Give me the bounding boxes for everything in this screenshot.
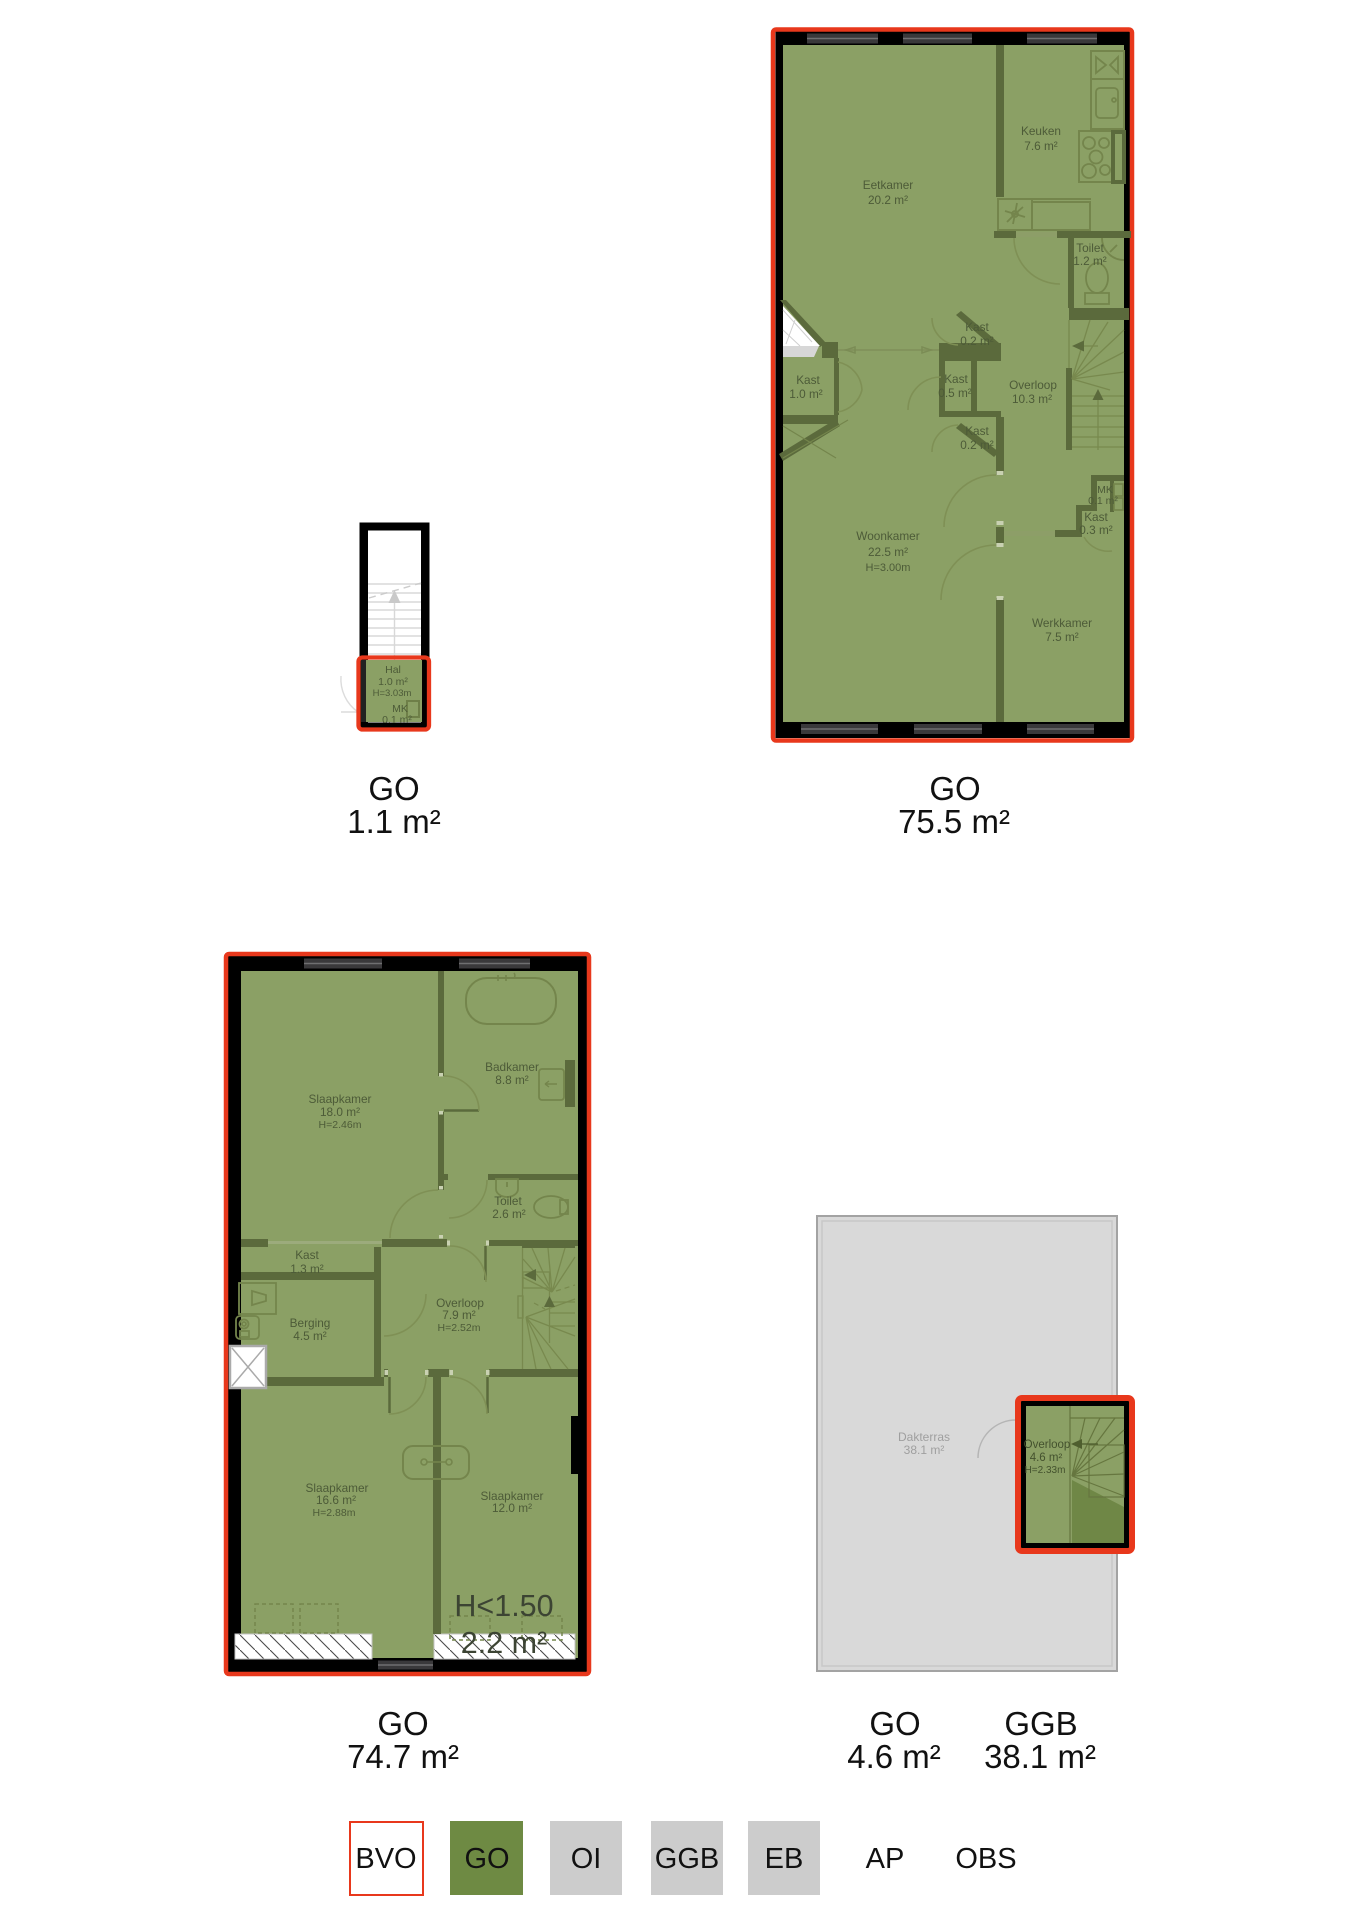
svg-text:7.6 m²: 7.6 m² (1024, 139, 1058, 153)
svg-text:Kast: Kast (1084, 510, 1108, 524)
svg-text:2.6 m²: 2.6 m² (492, 1207, 526, 1221)
svg-text:8.8 m²: 8.8 m² (495, 1073, 529, 1087)
svg-text:Berging: Berging (290, 1316, 331, 1330)
svg-text:H=2.33m: H=2.33m (1025, 1465, 1066, 1476)
svg-text:GO: GO (869, 1705, 920, 1742)
svg-text:GO: GO (464, 1843, 509, 1875)
svg-text:1.3 m²: 1.3 m² (290, 1262, 324, 1276)
svg-text:GO: GO (377, 1705, 428, 1742)
svg-text:0.2 m²: 0.2 m² (960, 438, 994, 452)
svg-text:H<1.50: H<1.50 (454, 1589, 553, 1623)
svg-text:Kast: Kast (295, 1248, 319, 1262)
svg-text:0.1 m²: 0.1 m² (382, 714, 412, 726)
svg-text:0.5 m²: 0.5 m² (938, 386, 972, 400)
svg-text:38.1 m²: 38.1 m² (904, 1443, 945, 1457)
svg-text:4.6 m²: 4.6 m² (1030, 1452, 1063, 1464)
svg-text:Toilet: Toilet (494, 1194, 522, 1208)
svg-text:GGB: GGB (1004, 1705, 1077, 1742)
svg-text:AP: AP (866, 1843, 905, 1875)
svg-text:Kast: Kast (965, 424, 989, 438)
svg-text:74.7 m²: 74.7 m² (347, 1738, 459, 1775)
svg-text:Dakterras: Dakterras (898, 1430, 950, 1444)
svg-text:0.3 m²: 0.3 m² (1079, 523, 1113, 537)
svg-text:Overloop: Overloop (1009, 378, 1057, 392)
svg-text:0.1 m²: 0.1 m² (1088, 495, 1118, 507)
svg-text:Toilet: Toilet (1076, 241, 1104, 255)
svg-text:OBS: OBS (955, 1843, 1016, 1875)
svg-text:Woonkamer: Woonkamer (856, 529, 919, 543)
svg-text:Kast: Kast (944, 372, 968, 386)
svg-text:Overloop: Overloop (1024, 1439, 1071, 1451)
svg-text:EB: EB (765, 1843, 804, 1875)
svg-text:Kast: Kast (796, 373, 820, 387)
svg-text:4.6 m²: 4.6 m² (847, 1738, 941, 1775)
svg-text:Keuken: Keuken (1021, 124, 1061, 138)
svg-text:GO: GO (368, 770, 419, 807)
svg-text:H=2.46m: H=2.46m (319, 1119, 362, 1131)
svg-text:1.2 m²: 1.2 m² (1073, 254, 1107, 268)
svg-text:7.9 m²: 7.9 m² (442, 1308, 476, 1322)
svg-text:2.2 m²: 2.2 m² (461, 1626, 547, 1660)
svg-text:75.5 m²: 75.5 m² (898, 803, 1010, 840)
svg-text:Eetkamer: Eetkamer (863, 178, 914, 192)
svg-text:1.0 m²: 1.0 m² (378, 676, 408, 688)
svg-text:22.5 m²: 22.5 m² (868, 545, 908, 559)
svg-text:16.6 m²: 16.6 m² (316, 1493, 356, 1507)
svg-text:Slaapkamer: Slaapkamer (309, 1092, 372, 1106)
svg-text:4.5 m²: 4.5 m² (293, 1329, 327, 1343)
svg-text:1.1 m²: 1.1 m² (347, 803, 441, 840)
svg-text:Kast: Kast (965, 320, 989, 334)
svg-text:Werkkamer: Werkkamer (1032, 616, 1092, 630)
svg-text:38.1 m²: 38.1 m² (984, 1738, 1096, 1775)
svg-text:12.0 m²: 12.0 m² (492, 1501, 532, 1515)
svg-text:GO: GO (929, 770, 980, 807)
svg-text:20.2 m²: 20.2 m² (868, 193, 908, 207)
svg-text:OI: OI (571, 1843, 602, 1875)
svg-text:H=3.03m: H=3.03m (373, 688, 412, 699)
svg-text:Badkamer: Badkamer (485, 1060, 539, 1074)
svg-text:GGB: GGB (655, 1843, 719, 1875)
svg-text:0.2 m²: 0.2 m² (960, 334, 994, 348)
svg-text:Hal: Hal (385, 664, 401, 676)
svg-text:10.3 m²: 10.3 m² (1012, 392, 1052, 406)
svg-text:H=2.88m: H=2.88m (313, 1507, 356, 1519)
svg-text:7.5 m²: 7.5 m² (1045, 630, 1079, 644)
svg-text:BVO: BVO (355, 1843, 416, 1875)
svg-text:1.0 m²: 1.0 m² (789, 387, 823, 401)
svg-text:H=2.52m: H=2.52m (438, 1322, 481, 1334)
svg-text:H=3.00m: H=3.00m (866, 562, 911, 574)
svg-text:18.0 m²: 18.0 m² (320, 1105, 360, 1119)
